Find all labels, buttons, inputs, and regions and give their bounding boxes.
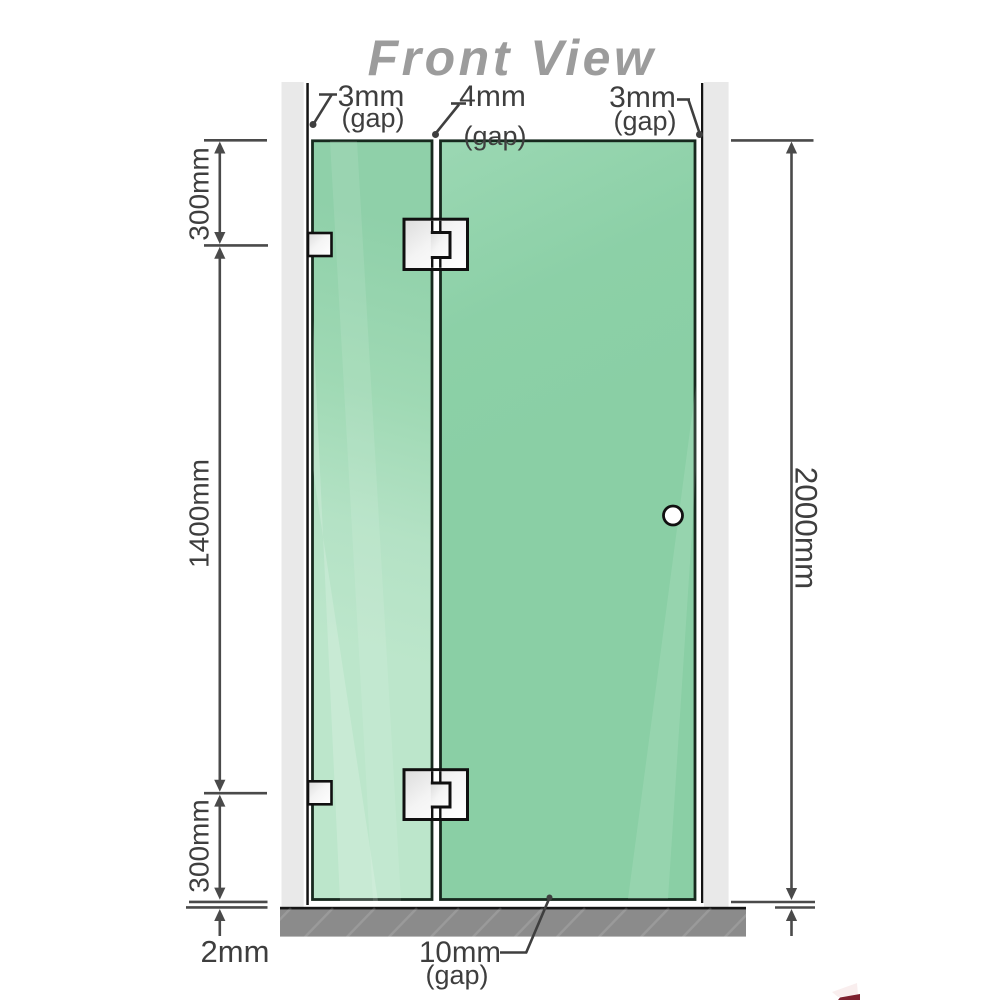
- svg-text:(gap): (gap): [463, 121, 526, 151]
- svg-text:4mm: 4mm: [459, 80, 526, 113]
- svg-text:2mm: 2mm: [201, 934, 270, 969]
- svg-text:(gap): (gap): [613, 106, 676, 136]
- svg-text:(gap): (gap): [341, 103, 404, 133]
- svg-text:300mm: 300mm: [184, 147, 215, 240]
- svg-text:Front View: Front View: [368, 30, 657, 86]
- svg-text:(gap): (gap): [425, 960, 488, 990]
- svg-text:300mm: 300mm: [184, 799, 215, 892]
- svg-text:1400mm: 1400mm: [184, 459, 215, 568]
- svg-text:2000mm: 2000mm: [789, 467, 825, 590]
